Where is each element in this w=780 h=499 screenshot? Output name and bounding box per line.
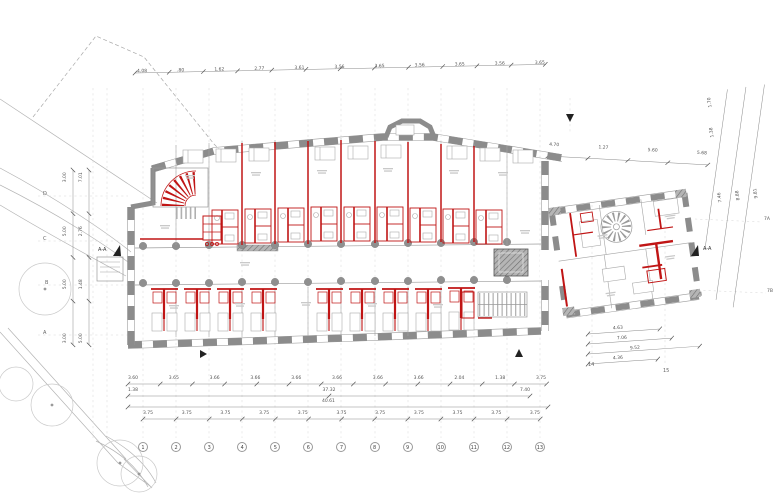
dim-label: 3.65: [455, 63, 465, 68]
bathroom-pod: [250, 289, 277, 331]
column: [304, 278, 312, 286]
grid-bubble: 4: [237, 442, 247, 452]
dim-label: 5.60: [647, 149, 657, 154]
dim-label: 3.75: [530, 412, 540, 417]
grid-row-7a: 7A: [764, 218, 770, 223]
section-arrow-top-icon: [566, 114, 574, 122]
bed: [315, 147, 335, 160]
dim-label: 5.68: [697, 152, 707, 157]
bathroom-pod: [316, 289, 343, 331]
column: [172, 279, 180, 287]
column: [404, 277, 412, 285]
room-label: [235, 303, 245, 307]
bed: [249, 148, 269, 161]
column: [371, 277, 379, 285]
grid-bubble: 9: [403, 442, 413, 452]
bathroom-pod: [382, 289, 409, 331]
dim-label: 3.66: [414, 377, 424, 382]
column: [337, 277, 345, 285]
grid-row-b: B: [45, 281, 48, 286]
bed: [480, 148, 500, 161]
dim-label: 1.62: [214, 68, 224, 73]
dim-label: 3.75: [336, 412, 346, 417]
room-label: [169, 305, 179, 309]
dim-label: 4.70: [549, 144, 559, 149]
room-label: [520, 230, 530, 234]
bathroom-pod: [245, 209, 271, 243]
bathroom-pods-bottom: [151, 288, 475, 331]
column: [139, 279, 147, 287]
room-label: [606, 292, 616, 297]
dim-label-wing-1: 4.63: [613, 327, 623, 332]
dim-label: 3.65: [169, 377, 179, 382]
dim-label: 1.38: [128, 389, 138, 394]
bed: [348, 146, 368, 159]
dim-total-label: 40.61: [322, 400, 335, 405]
column: [503, 276, 511, 284]
room-label: [665, 214, 675, 219]
bathroom-pod: [344, 207, 370, 241]
right-wing: [547, 189, 701, 319]
dim-label: .80: [177, 69, 184, 74]
dim-label: 1.27: [598, 146, 608, 151]
bathroom-pod: [278, 208, 304, 242]
grid-bubble-row: 12345678910111213: [138, 442, 545, 452]
grid-bubble: 8: [370, 442, 380, 452]
room-label: [251, 172, 261, 176]
bed: [183, 150, 203, 163]
bathroom-pod: [349, 289, 376, 331]
bed: [513, 150, 533, 163]
section-arrow-b-icon: [200, 350, 207, 358]
entrance-porch: [97, 257, 123, 281]
dim-row-bottom-1: 3.603.653.663.663.663.663.663.662.041.38…: [128, 377, 546, 382]
bathroom-pod: [217, 289, 244, 331]
dim-label-wing-4: 4.36: [613, 357, 623, 362]
dim-label: 7.01: [80, 172, 85, 182]
dim-label: 3.66: [210, 377, 220, 382]
dim-label: 37.32: [323, 389, 336, 394]
grid-row-d: D: [43, 192, 47, 197]
column: [139, 242, 147, 250]
room-label: [240, 262, 250, 266]
column: [205, 279, 213, 287]
bathroom-pod: [311, 207, 337, 241]
dim-label: 3.75: [453, 412, 463, 417]
room-label: [383, 168, 393, 172]
room-label: [160, 225, 170, 229]
grid-bubble: 3: [204, 442, 214, 452]
bathroom-pod: [212, 210, 238, 244]
dim-label: 5.00: [64, 226, 69, 236]
dim-label: 3.75: [298, 412, 308, 417]
column: [271, 278, 279, 286]
grid-bubble: 2: [171, 442, 181, 452]
dim-col-left-inner: 7.012.761.485.00: [76, 175, 88, 340]
columns: [139, 238, 511, 287]
dim-label: 1.38: [495, 377, 505, 382]
dim-label: 3.61: [294, 67, 304, 72]
dim-label: 3.66: [332, 377, 342, 382]
dim-label: 7.40: [520, 389, 530, 394]
section-arrow-aa-left-icon: [113, 245, 121, 256]
room-label: [367, 303, 377, 307]
bed: [216, 149, 236, 162]
dim-label: 3.75: [220, 412, 230, 417]
right-exterior-wall: [540, 161, 552, 331]
grid-bubble: 6: [303, 442, 313, 452]
bathroom-pod: [476, 210, 502, 244]
dim-label: 4.08: [137, 70, 147, 75]
dim-label: 3.75: [182, 412, 192, 417]
dim-label: 5.00: [80, 333, 85, 343]
dim-label: 3.75: [491, 412, 501, 417]
dim-label: 3.66: [250, 377, 260, 382]
dim-label: 3.75: [259, 412, 269, 417]
wing-furniture: [578, 198, 689, 300]
room-label: [665, 255, 675, 260]
dim-label: 3.65: [535, 62, 545, 67]
spiral-stair: [153, 168, 208, 213]
site-boundary: [0, 36, 231, 203]
grid-bubble: 13: [535, 442, 545, 452]
grid-bubble: 1: [138, 442, 148, 452]
dim-row-bottom-4: 3.753.753.753.753.753.753.753.753.753.75…: [143, 412, 540, 417]
grid-number-14: 14: [588, 363, 594, 368]
room-label: [498, 172, 508, 176]
grid-number-15: 15: [663, 369, 669, 374]
column: [437, 276, 445, 284]
column: [470, 276, 478, 284]
bathroom-pod: [377, 207, 403, 241]
room-label: [301, 302, 311, 306]
dim-label: 3.56: [415, 64, 425, 69]
room-label: [433, 304, 443, 308]
section-label-aa-left: A-A: [98, 248, 106, 253]
main-building: [97, 121, 562, 349]
room-label: [449, 170, 459, 174]
dim-label: 2.76: [80, 226, 85, 236]
dim-label: 3.75: [375, 412, 385, 417]
bathroom-pods-top: [212, 207, 502, 244]
bed: [447, 146, 467, 159]
bed: [381, 145, 401, 158]
room-label: [317, 170, 327, 174]
grid-bubble: 7: [336, 442, 346, 452]
section-label-aa-right: A-A: [703, 247, 711, 252]
grid-bubble: 10: [436, 442, 446, 452]
grid-row-7b: 7B: [767, 290, 773, 295]
dim-label: 3.66: [291, 377, 301, 382]
dim-label-wing-3: 9.52: [630, 347, 640, 352]
grid-bubble: 11: [469, 442, 479, 452]
bathroom-pod: [151, 289, 178, 331]
dim-label: 3.60: [128, 377, 138, 382]
grid-row-c: C: [43, 237, 47, 242]
bathroom-pod: [415, 289, 442, 331]
dim-label: 3.56: [334, 66, 344, 71]
section-arrow-bottom-icon: [515, 349, 523, 357]
dim-label: 2.77: [254, 68, 264, 73]
grid-row-a: A: [43, 331, 46, 336]
grid-bubble: 5: [270, 442, 280, 452]
left-exterior-wall: [128, 168, 154, 345]
dim-label: 3.75: [414, 412, 424, 417]
floor-plan-canvas: 12345678910111213 14 15 D C B A 7A 7B A-…: [0, 0, 780, 499]
elevator: [494, 249, 528, 276]
dim-label: 3.00: [64, 172, 69, 182]
dim-label: 2.04: [454, 377, 464, 382]
dim-label: 5.00: [64, 279, 69, 289]
dim-row-bottom-2: 1.3837.327.40: [128, 389, 530, 394]
dim-label-wing-2: 7.06: [617, 337, 627, 342]
bathroom-pod: [184, 289, 211, 331]
bathroom-pod: [410, 208, 436, 242]
dim-label: 3.66: [373, 377, 383, 382]
column: [238, 278, 246, 286]
dim-label: 3.75: [536, 377, 546, 382]
dim-label: 3.00: [64, 333, 69, 343]
dim-label: 3.75: [143, 412, 153, 417]
bathroom-pod: [443, 209, 469, 243]
dim-label: 1.48: [80, 279, 85, 289]
plan-drawing: [0, 0, 780, 499]
grid-bubble: 12: [502, 442, 512, 452]
dim-col-left-outer: 3.005.005.003.00: [60, 175, 72, 340]
dim-label: 3.56: [495, 63, 505, 68]
dim-label: 3.65: [375, 65, 385, 70]
grid-lines: [93, 88, 540, 438]
